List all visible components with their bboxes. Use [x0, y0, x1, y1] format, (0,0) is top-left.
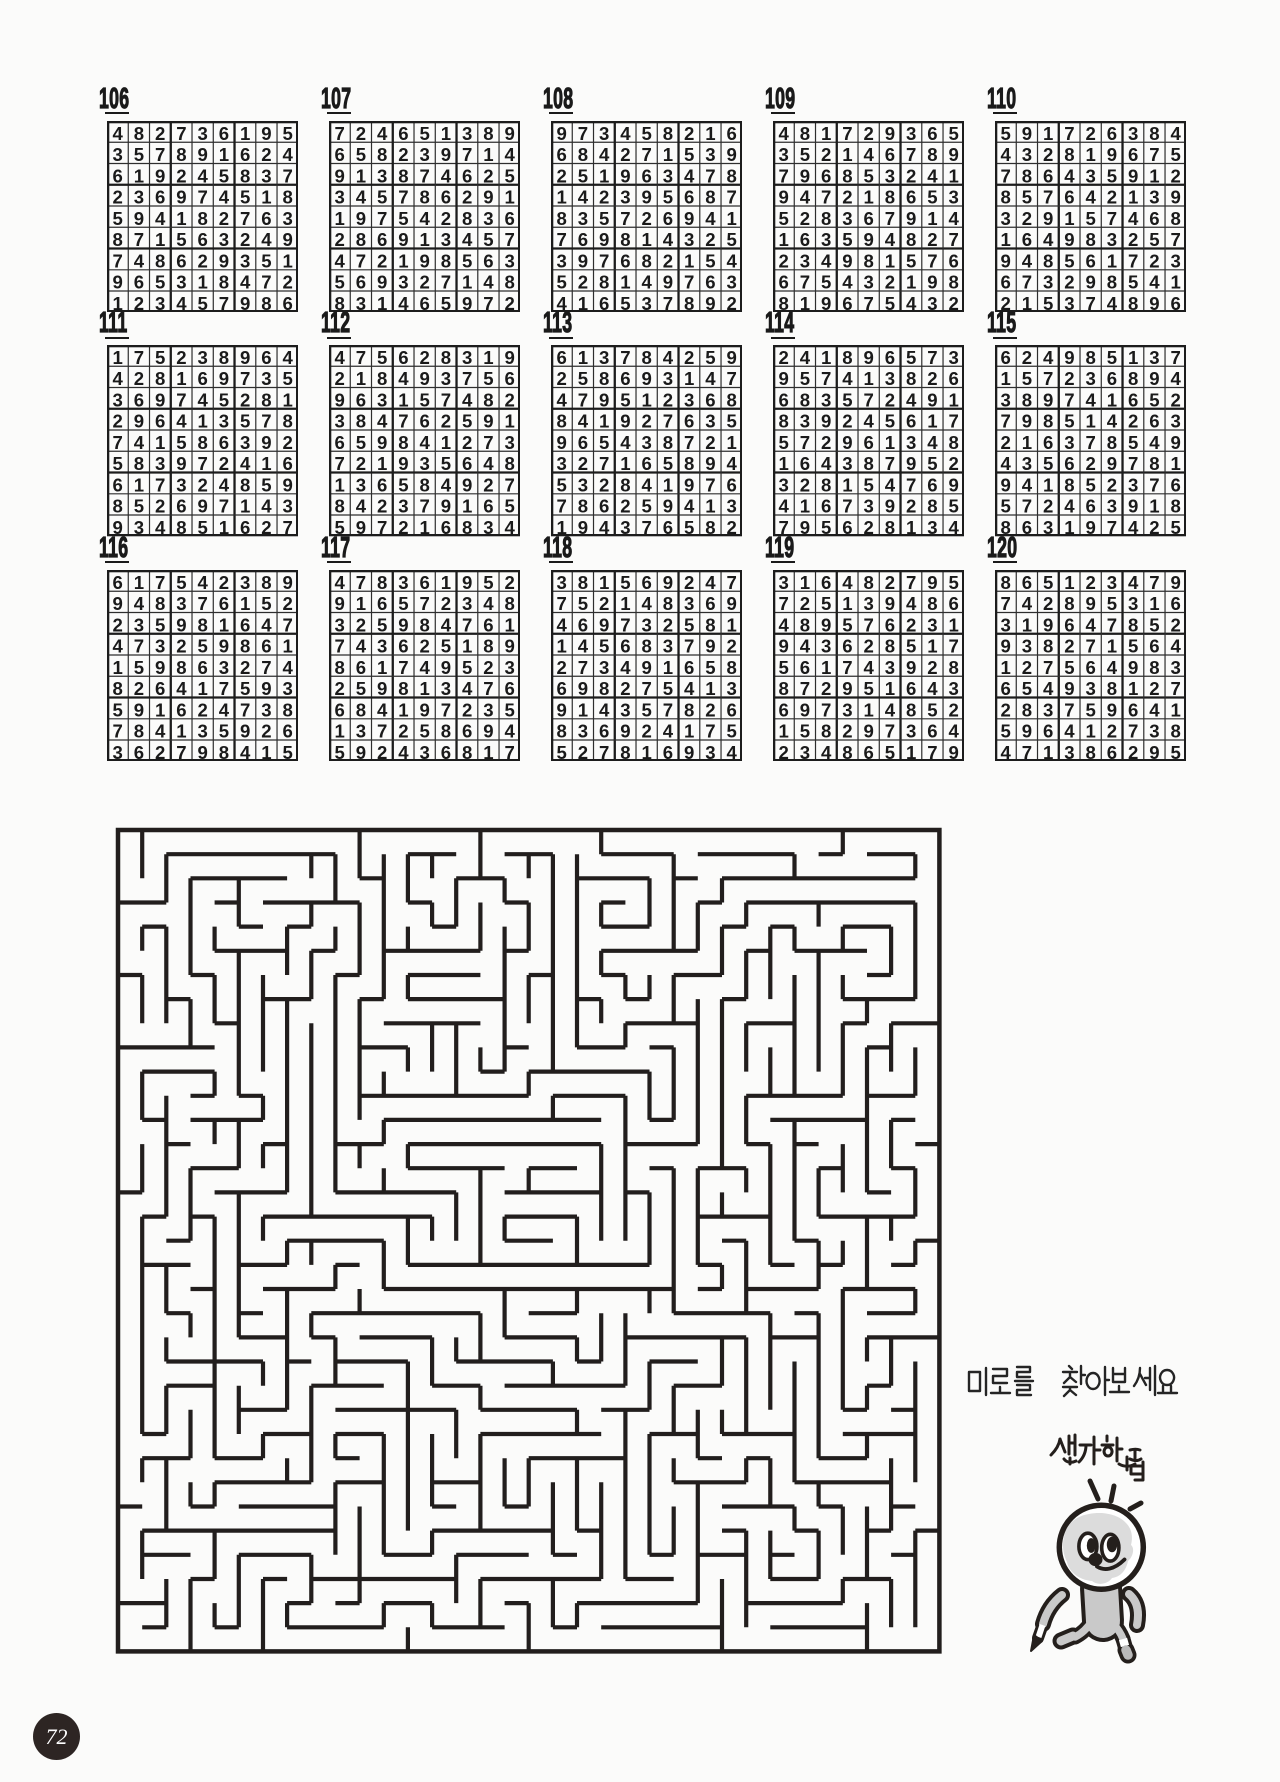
svg-text:157236894: 157236894 — [1000, 369, 1181, 390]
svg-text:475628319: 475628319 — [334, 347, 514, 368]
svg-text:482736195: 482736195 — [112, 123, 292, 144]
svg-text:123457986: 123457986 — [112, 293, 292, 312]
svg-text:158297364: 158297364 — [778, 721, 959, 742]
svg-text:251963478: 251963478 — [556, 165, 736, 186]
svg-text:194376582: 194376582 — [556, 517, 736, 536]
svg-text:259813476: 259813476 — [334, 678, 514, 699]
svg-text:913874625: 913874625 — [334, 165, 514, 186]
svg-text:527816934: 527816934 — [556, 742, 737, 761]
svg-text:684197235: 684197235 — [334, 699, 514, 720]
svg-text:469732581: 469732581 — [556, 614, 736, 635]
svg-text:721935648: 721935648 — [334, 454, 514, 475]
svg-text:137258694: 137258694 — [334, 721, 515, 742]
svg-text:142395687: 142395687 — [556, 187, 736, 208]
svg-text:216378549: 216378549 — [1000, 432, 1180, 453]
svg-text:947218653: 947218653 — [778, 187, 958, 208]
svg-text:594182763: 594182763 — [112, 208, 292, 229]
svg-text:673298541: 673298541 — [1000, 272, 1180, 293]
svg-text:941852376: 941852376 — [1000, 475, 1180, 496]
svg-text:675432198: 675432198 — [778, 272, 958, 293]
svg-text:235981647: 235981647 — [112, 614, 292, 635]
svg-text:428169735: 428169735 — [112, 369, 292, 390]
svg-text:872951643: 872951643 — [778, 678, 958, 699]
svg-text:769814325: 769814325 — [556, 229, 736, 250]
svg-text:218493756: 218493756 — [334, 369, 514, 390]
svg-text:352146789: 352146789 — [778, 144, 958, 165]
svg-text:258693147: 258693147 — [556, 369, 736, 390]
svg-text:316482795: 316482795 — [778, 572, 958, 593]
svg-text:863197425: 863197425 — [1000, 517, 1180, 536]
svg-text:327165894: 327165894 — [556, 454, 737, 475]
svg-text:916572348: 916572348 — [334, 593, 514, 614]
svg-text:416739285: 416739285 — [778, 496, 958, 517]
svg-text:697314852: 697314852 — [778, 699, 958, 720]
svg-text:613784259: 613784259 — [556, 347, 736, 368]
svg-text:572463918: 572463918 — [1000, 496, 1180, 517]
svg-text:127564983: 127564983 — [1000, 657, 1180, 678]
svg-text:725139486: 725139486 — [778, 593, 958, 614]
svg-text:241896573: 241896573 — [778, 347, 958, 368]
svg-text:938271564: 938271564 — [1000, 636, 1181, 657]
svg-text:481729365: 481729365 — [778, 123, 958, 144]
svg-text:857642139: 857642139 — [1000, 187, 1180, 208]
svg-text:684271539: 684271539 — [556, 144, 736, 165]
svg-text:963157482: 963157482 — [334, 390, 514, 411]
svg-text:624985137: 624985137 — [1000, 347, 1180, 368]
svg-text:943628517: 943628517 — [778, 636, 958, 657]
svg-text:973458216: 973458216 — [556, 123, 736, 144]
svg-text:164387952: 164387952 — [778, 454, 958, 475]
svg-text:234981576: 234981576 — [778, 250, 958, 271]
svg-text:683572491: 683572491 — [778, 390, 958, 411]
svg-text:215374896: 215374896 — [1000, 293, 1180, 312]
svg-text:957413826: 957413826 — [778, 369, 958, 390]
svg-text:836924175: 836924175 — [556, 721, 736, 742]
svg-text:798514263: 798514263 — [1000, 411, 1180, 432]
svg-text:234865179: 234865179 — [778, 742, 958, 761]
svg-text:752148369: 752148369 — [556, 593, 736, 614]
svg-text:741586392: 741586392 — [112, 432, 292, 453]
svg-text:841927635: 841927635 — [556, 411, 736, 432]
svg-text:163594827: 163594827 — [778, 229, 958, 250]
svg-text:435629781: 435629781 — [1000, 454, 1180, 475]
svg-text:528367914: 528367914 — [778, 208, 959, 229]
svg-text:273491658: 273491658 — [556, 657, 736, 678]
svg-text:795628134: 795628134 — [778, 517, 959, 536]
svg-text:329157468: 329157468 — [1000, 208, 1180, 229]
svg-text:659841273: 659841273 — [334, 432, 514, 453]
svg-text:591726384: 591726384 — [1000, 123, 1181, 144]
svg-text:528149763: 528149763 — [556, 272, 736, 293]
svg-text:592436817: 592436817 — [334, 742, 514, 761]
svg-text:236974518: 236974518 — [112, 187, 292, 208]
svg-text:164983257: 164983257 — [1000, 229, 1180, 250]
svg-text:842379165: 842379165 — [334, 496, 514, 517]
svg-text:796853241: 796853241 — [778, 165, 958, 186]
svg-text:532841976: 532841976 — [556, 475, 736, 496]
svg-text:283759641: 283759641 — [1000, 699, 1180, 720]
svg-text:357891624: 357891624 — [112, 144, 293, 165]
svg-text:948561723: 948561723 — [1000, 250, 1180, 271]
svg-text:617542389: 617542389 — [112, 572, 292, 593]
svg-text:159863274: 159863274 — [112, 657, 293, 678]
svg-text:416537892: 416537892 — [556, 293, 736, 312]
svg-text:328154769: 328154769 — [778, 475, 958, 496]
svg-text:743625189: 743625189 — [334, 636, 514, 657]
svg-text:617324859: 617324859 — [112, 475, 292, 496]
svg-text:786259413: 786259413 — [556, 496, 736, 517]
svg-text:597216834: 597216834 — [334, 517, 515, 536]
svg-text:381569247: 381569247 — [556, 572, 736, 593]
svg-text:948376152: 948376152 — [112, 593, 292, 614]
svg-text:819675432: 819675432 — [778, 293, 958, 312]
svg-text:479512368: 479512368 — [556, 390, 736, 411]
svg-text:384762591: 384762591 — [334, 411, 514, 432]
svg-text:658239714: 658239714 — [334, 144, 515, 165]
svg-text:698275413: 698275413 — [556, 678, 736, 699]
svg-text:572961348: 572961348 — [778, 432, 958, 453]
svg-text:742895316: 742895316 — [1000, 593, 1180, 614]
svg-text:831465972: 831465972 — [334, 293, 514, 312]
svg-text:784135926: 784135926 — [112, 721, 292, 742]
svg-text:865123479: 865123479 — [1000, 572, 1180, 593]
svg-text:471386295: 471386295 — [1000, 742, 1180, 761]
svg-text:489576231: 489576231 — [778, 614, 958, 635]
svg-text:619245837: 619245837 — [112, 165, 292, 186]
svg-text:369745281: 369745281 — [112, 390, 292, 411]
svg-text:569327148: 569327148 — [334, 272, 514, 293]
svg-text:835726941: 835726941 — [556, 208, 736, 229]
svg-text:654938127: 654938127 — [1000, 678, 1180, 699]
svg-text:871563249: 871563249 — [112, 229, 292, 250]
svg-text:934851627: 934851627 — [112, 517, 292, 536]
svg-text:319647852: 319647852 — [1000, 614, 1180, 635]
svg-text:472198563: 472198563 — [334, 250, 514, 271]
svg-text:914357826: 914357826 — [556, 699, 736, 720]
svg-text:473259861: 473259861 — [112, 636, 292, 657]
svg-text:861749523: 861749523 — [334, 657, 514, 678]
svg-text:175238964: 175238964 — [112, 347, 293, 368]
svg-text:296413578: 296413578 — [112, 411, 292, 432]
svg-text:286913457: 286913457 — [334, 229, 514, 250]
svg-text:839245617: 839245617 — [778, 411, 958, 432]
svg-text:965318472: 965318472 — [112, 272, 292, 293]
svg-text:145683792: 145683792 — [556, 636, 736, 657]
svg-text:325984761: 325984761 — [334, 614, 514, 635]
svg-text:748629351: 748629351 — [112, 250, 292, 271]
svg-text:362798415: 362798415 — [112, 742, 292, 761]
svg-text:432819675: 432819675 — [1000, 144, 1180, 165]
svg-text:591624738: 591624738 — [112, 699, 292, 720]
svg-text:583972416: 583972416 — [112, 454, 292, 475]
svg-text:197542836: 197542836 — [334, 208, 514, 229]
svg-text:724651389: 724651389 — [334, 123, 514, 144]
svg-text:826417593: 826417593 — [112, 678, 292, 699]
svg-text:596412738: 596412738 — [1000, 721, 1180, 742]
svg-text:786435912: 786435912 — [1000, 165, 1180, 186]
svg-text:397682154: 397682154 — [556, 250, 737, 271]
svg-text:478361952: 478361952 — [334, 572, 514, 593]
svg-text:389741652: 389741652 — [1000, 390, 1180, 411]
svg-text:345786291: 345786291 — [334, 187, 514, 208]
svg-text:136584927: 136584927 — [334, 475, 514, 496]
svg-text:561743928: 561743928 — [778, 657, 958, 678]
svg-text:852697143: 852697143 — [112, 496, 292, 517]
svg-text:965438721: 965438721 — [556, 432, 736, 453]
